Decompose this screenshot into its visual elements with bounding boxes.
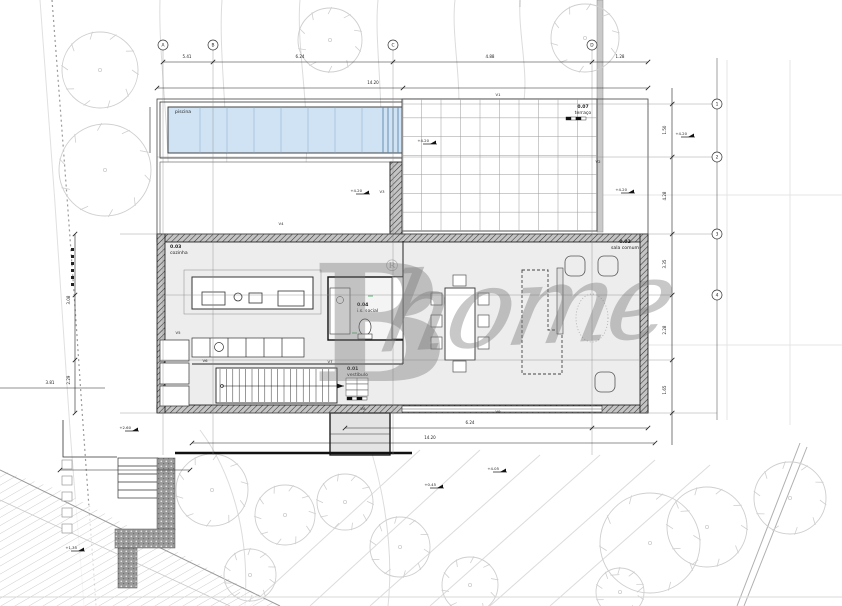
spot-level: +0.45 bbox=[424, 482, 444, 488]
svg-text:+0.45: +0.45 bbox=[424, 482, 436, 487]
svg-text:14.20: 14.20 bbox=[424, 435, 436, 440]
wall-east bbox=[640, 234, 648, 413]
svg-text:+4.20: +4.20 bbox=[675, 131, 687, 136]
svg-text:V9: V9 bbox=[495, 409, 501, 414]
label-pool: piscina bbox=[175, 109, 191, 115]
svg-text:+4.05: +4.05 bbox=[487, 466, 499, 471]
boundary-wall-right bbox=[737, 443, 807, 606]
svg-text:2.28: 2.28 bbox=[662, 325, 667, 334]
tree bbox=[59, 123, 151, 217]
staircase bbox=[216, 368, 344, 403]
svg-text:5.41: 5.41 bbox=[183, 54, 192, 59]
svg-text:B: B bbox=[211, 43, 214, 49]
tree bbox=[175, 453, 248, 526]
label-hall-name: vestíbulo bbox=[347, 371, 368, 378]
tree bbox=[599, 493, 701, 593]
boundary-markers bbox=[62, 248, 74, 533]
existing-wall-strip bbox=[597, 0, 603, 232]
svg-text:1.28: 1.28 bbox=[616, 54, 625, 59]
toilet bbox=[359, 319, 371, 335]
sink bbox=[249, 293, 262, 303]
spot-level: +4.20 bbox=[615, 187, 635, 193]
svg-text:V3: V3 bbox=[379, 189, 385, 194]
fireplace-wall bbox=[557, 268, 563, 334]
svg-text:+1.35: +1.35 bbox=[65, 545, 77, 550]
svg-text:V2: V2 bbox=[595, 159, 601, 164]
exterior-stairs bbox=[118, 458, 158, 498]
svg-text:6.24: 6.24 bbox=[296, 54, 305, 59]
label-wc-number: 0.04 bbox=[357, 302, 368, 308]
svg-text:4.28: 4.28 bbox=[662, 191, 667, 200]
planted-terrace bbox=[160, 162, 390, 234]
tree bbox=[666, 487, 748, 567]
storage-rooms bbox=[160, 340, 189, 406]
label-terrace-name: terraço bbox=[575, 110, 592, 116]
svg-text:+2.60: +2.60 bbox=[119, 425, 131, 430]
svg-text:V6: V6 bbox=[202, 358, 208, 363]
svg-text:V8: V8 bbox=[360, 406, 366, 411]
svg-text:V7: V7 bbox=[327, 359, 333, 364]
tree bbox=[754, 461, 827, 534]
svg-text:3.08: 3.08 bbox=[66, 295, 71, 304]
spot-level: +4.05 bbox=[487, 466, 507, 472]
svg-text:3.35: 3.35 bbox=[662, 259, 667, 268]
svg-text:1.65: 1.65 bbox=[662, 385, 667, 394]
kitchen-cabinets bbox=[192, 338, 304, 357]
tree bbox=[61, 32, 138, 109]
svg-text:A: A bbox=[161, 43, 164, 49]
label-wc-name: i.s. social bbox=[357, 308, 378, 314]
svg-text:4.88: 4.88 bbox=[486, 54, 495, 59]
svg-text:2: 2 bbox=[716, 155, 719, 161]
swimming-pool bbox=[168, 107, 403, 153]
label-living-name: sala comum bbox=[611, 245, 639, 251]
label-kitchen-number: 0.03 bbox=[170, 244, 181, 250]
svg-text:C: C bbox=[391, 43, 394, 49]
svg-text:+4.20: +4.20 bbox=[615, 187, 627, 192]
tall-cabinet bbox=[392, 277, 403, 339]
stair-legend bbox=[346, 378, 368, 396]
spot-level: +2.60 bbox=[119, 425, 139, 431]
tree bbox=[596, 567, 644, 606]
kitchen-island bbox=[184, 270, 321, 314]
tree bbox=[370, 516, 431, 578]
svg-text:4: 4 bbox=[716, 293, 719, 299]
plan-drawing: ABCD1234 5.416.244.881.2814.206.2414.201… bbox=[0, 0, 842, 606]
svg-text:3: 3 bbox=[716, 232, 719, 238]
svg-text:1.50: 1.50 bbox=[662, 125, 667, 134]
svg-text:V4: V4 bbox=[278, 221, 284, 226]
tree bbox=[441, 556, 498, 606]
tree bbox=[316, 474, 374, 530]
building bbox=[157, 234, 648, 413]
floor-plan-sheet: ABCD1234 5.416.244.881.2814.206.2414.201… bbox=[0, 0, 842, 606]
tree bbox=[298, 7, 362, 73]
label-kitchen-name: cozinha bbox=[170, 250, 188, 256]
svg-text:14.20: 14.20 bbox=[367, 80, 379, 85]
tree bbox=[254, 485, 316, 545]
svg-text:1: 1 bbox=[716, 102, 719, 108]
spot-level: +4.20 bbox=[675, 131, 695, 137]
svg-text:3.81: 3.81 bbox=[46, 380, 55, 385]
label-terrace-number: 0.07 bbox=[577, 104, 588, 110]
svg-text:6.24: 6.24 bbox=[466, 420, 475, 425]
wall-north bbox=[157, 234, 648, 242]
cooktop bbox=[234, 293, 242, 301]
terrace-wall bbox=[390, 162, 402, 234]
svg-text:2.29: 2.29 bbox=[66, 375, 71, 384]
svg-text:V1: V1 bbox=[495, 92, 501, 97]
svg-text:+4.20: +4.20 bbox=[350, 188, 362, 193]
label-hall-number: 0.01 bbox=[347, 366, 358, 372]
label-living-number: 0.02 bbox=[619, 239, 630, 245]
svg-text:V5: V5 bbox=[175, 330, 181, 335]
svg-text:+4.20: +4.20 bbox=[417, 138, 429, 143]
